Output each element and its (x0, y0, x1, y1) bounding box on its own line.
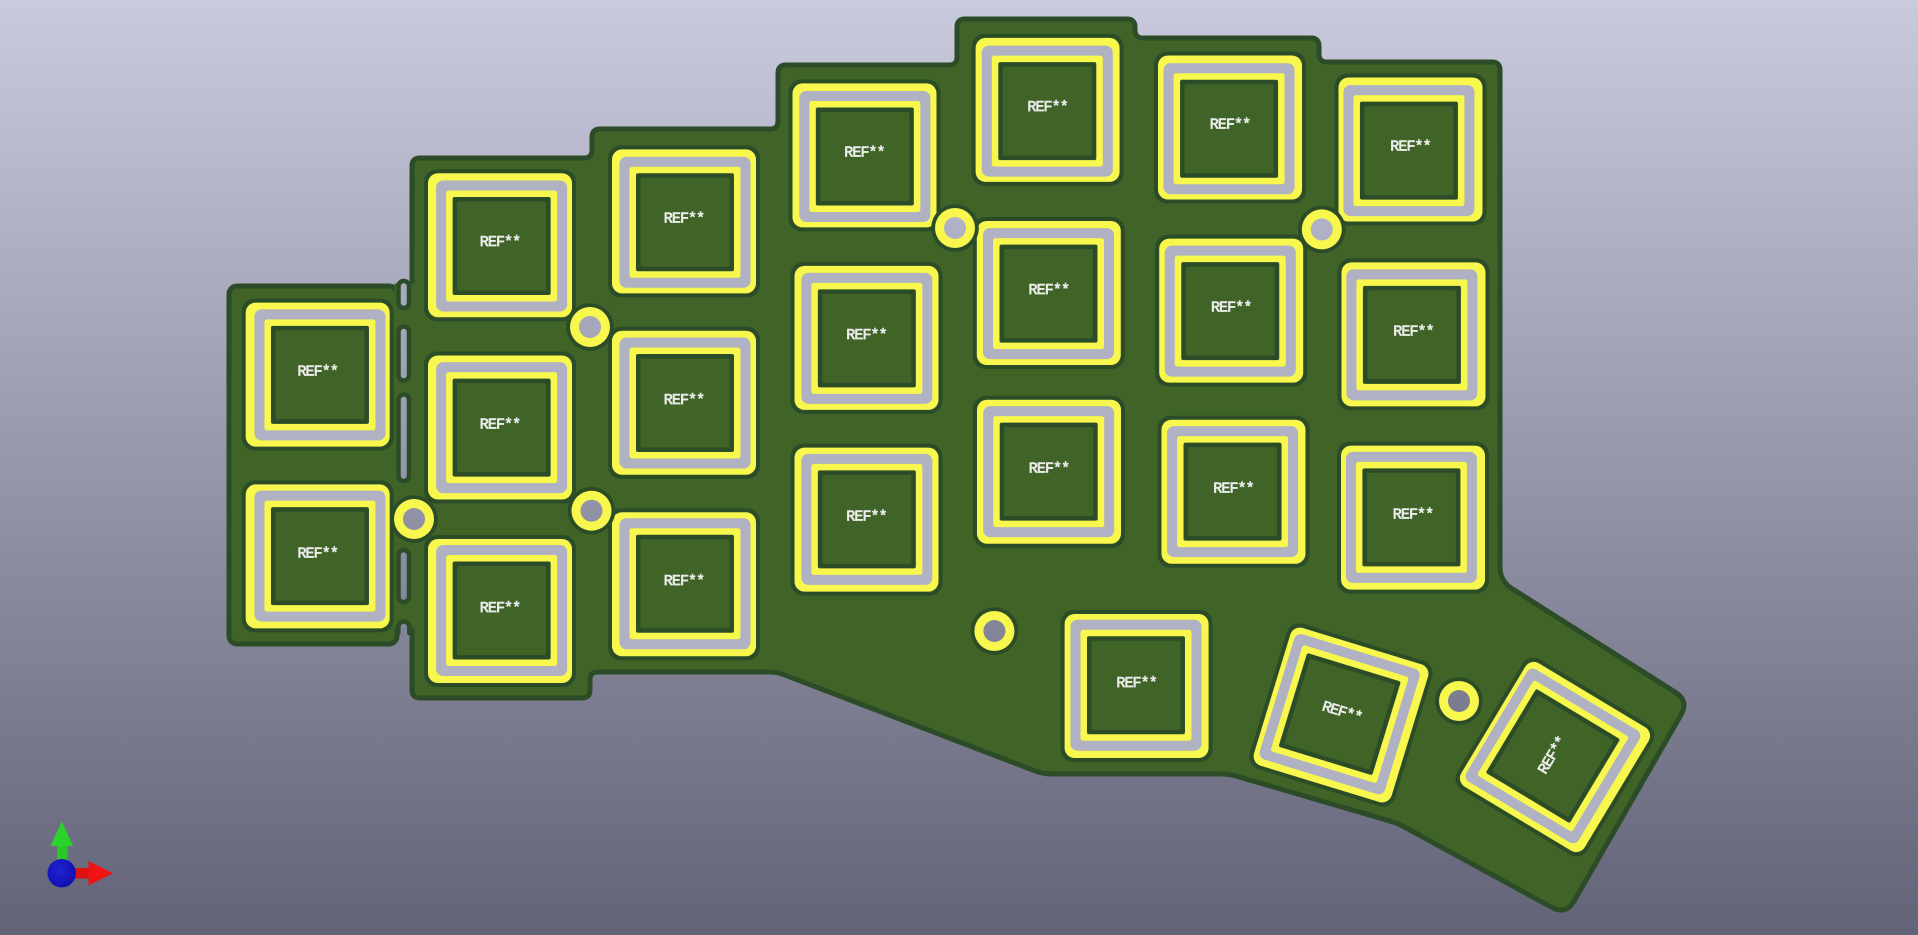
svg-text:REF**: REF** (1213, 481, 1254, 498)
svg-text:REF**: REF** (664, 573, 705, 590)
svg-text:REF**: REF** (1029, 461, 1070, 478)
svg-text:REF**: REF** (1029, 282, 1070, 299)
svg-text:REF**: REF** (1393, 507, 1434, 524)
svg-text:REF**: REF** (664, 392, 705, 409)
svg-text:REF**: REF** (844, 144, 885, 161)
svg-text:REF**: REF** (1211, 300, 1252, 317)
svg-text:REF**: REF** (297, 545, 338, 562)
svg-text:REF**: REF** (297, 364, 338, 381)
svg-text:REF**: REF** (1390, 139, 1431, 156)
svg-text:REF**: REF** (480, 234, 521, 251)
svg-text:REF**: REF** (1393, 323, 1434, 340)
svg-text:REF**: REF** (1027, 99, 1068, 116)
svg-text:REF**: REF** (480, 600, 521, 617)
svg-text:REF**: REF** (1116, 675, 1157, 692)
svg-text:REF**: REF** (480, 417, 521, 434)
svg-text:REF**: REF** (1210, 117, 1251, 134)
svg-text:REF**: REF** (664, 210, 705, 227)
svg-text:REF**: REF** (846, 509, 887, 526)
svg-text:REF**: REF** (846, 327, 887, 344)
